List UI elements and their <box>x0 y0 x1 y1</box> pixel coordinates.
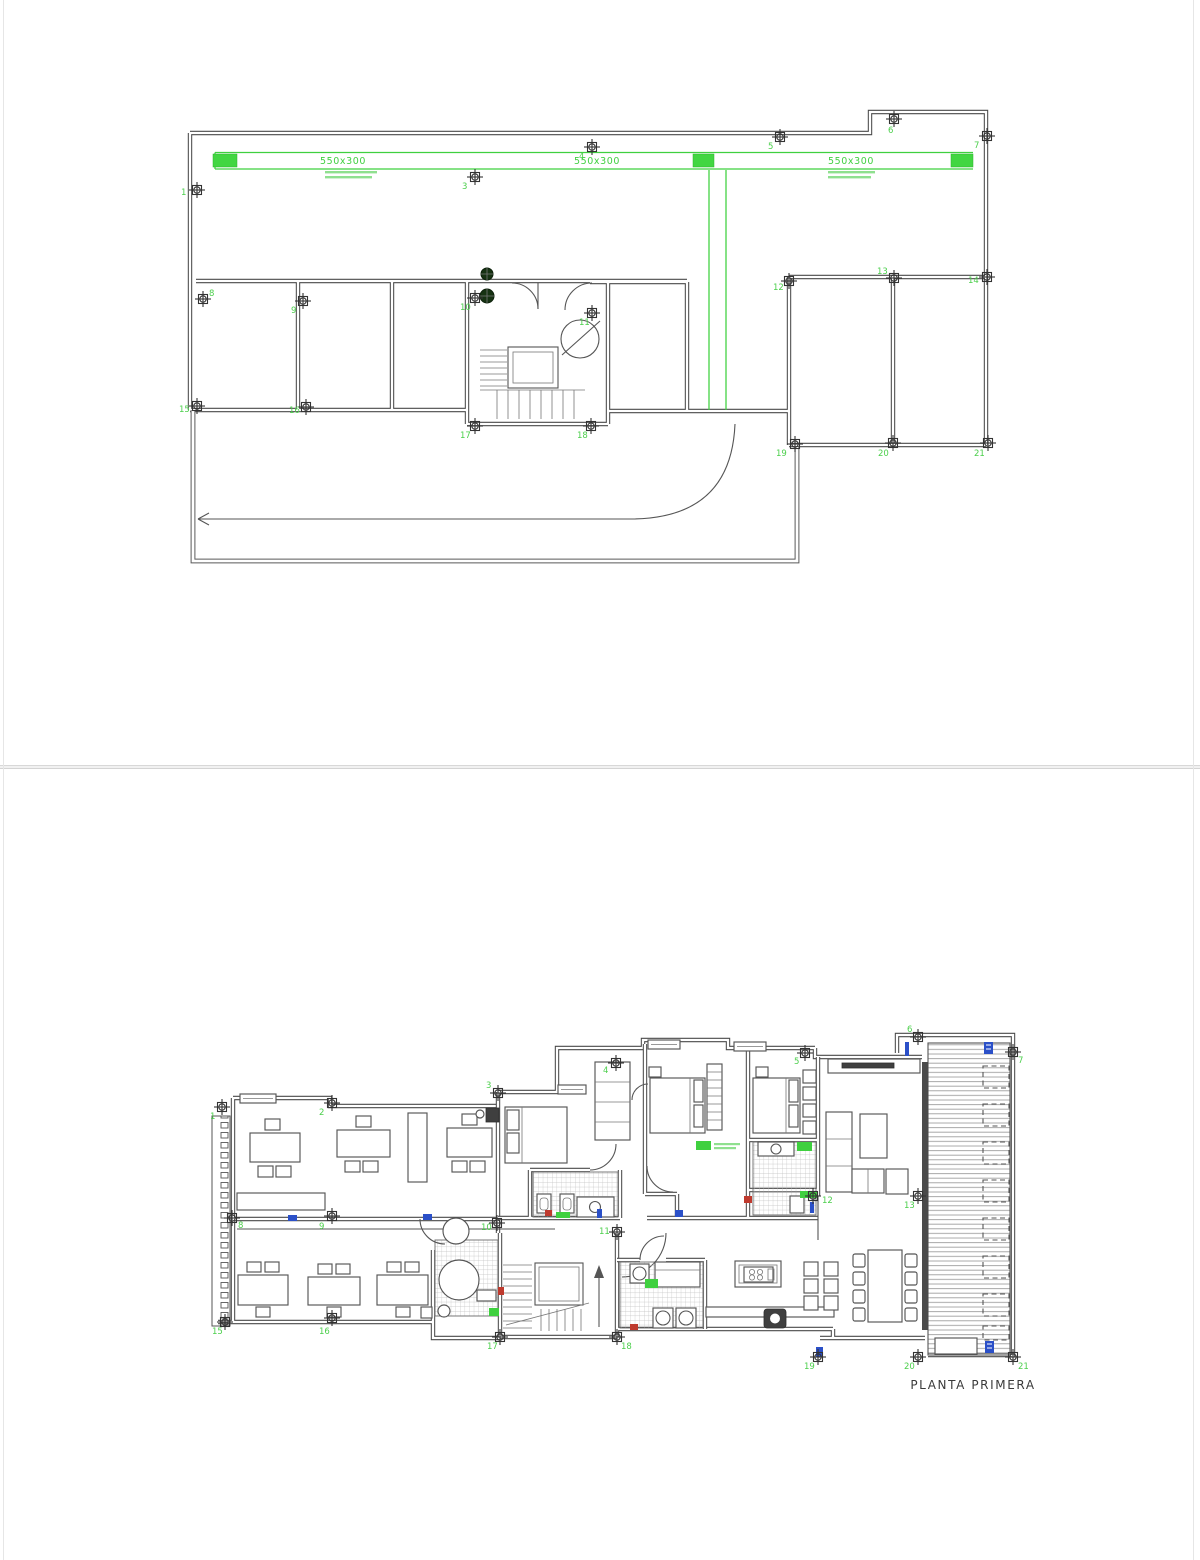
grid-marker-label: 15 <box>179 405 190 415</box>
column <box>443 1218 469 1244</box>
desk <box>238 1275 288 1305</box>
page-edge-right <box>1193 0 1194 1560</box>
stair-core <box>503 1263 604 1331</box>
grid-marker-label: 10 <box>460 303 471 313</box>
sink <box>477 1290 496 1301</box>
grid-marker-label: 15 <box>212 1327 223 1337</box>
grid-marker-label: 20 <box>904 1362 915 1372</box>
vanity <box>577 1197 614 1217</box>
duct-size-label: 550x300 <box>828 156 874 167</box>
office-desks-top <box>237 1108 499 1210</box>
duct-damper <box>951 154 973 167</box>
plan-title: PLANTA PRIMERA <box>910 1378 1035 1392</box>
sofa <box>826 1112 852 1192</box>
document-viewer: 550x300 550x300 550x300 <box>0 0 1200 1560</box>
deck-step <box>935 1338 977 1354</box>
roof-plan-drawing: 550x300 550x300 550x300 <box>0 0 1200 764</box>
duct-damper <box>213 154 237 167</box>
grid-marker-label: 3 <box>462 182 467 192</box>
bedside-table <box>756 1067 768 1077</box>
grid-marker-label: 12 <box>773 283 784 293</box>
counter <box>655 1262 700 1287</box>
grid-marker-label: 18 <box>621 1342 632 1352</box>
page-planta-primera: 1 2 3 4 5 6 7 8 9 10 11 12 13 15 16 17 1… <box>0 770 1200 1560</box>
grid-marker-label: 14 <box>968 276 979 286</box>
grid-marker-label: 16 <box>319 1327 330 1337</box>
page-roof-plan: 550x300 550x300 550x300 <box>0 0 1200 764</box>
grid-marker-label: 13 <box>904 1201 915 1211</box>
drain <box>438 1305 450 1317</box>
grid-marker-label: 21 <box>1018 1362 1029 1372</box>
grid-marker-label: 10 <box>481 1223 492 1233</box>
grid-marker-label: 19 <box>776 449 787 459</box>
grid-marker-label: 3 <box>486 1081 491 1091</box>
desk <box>308 1277 360 1305</box>
grid-marker-label: 8 <box>238 1221 243 1231</box>
terrace-deck <box>922 1043 1010 1355</box>
elevator-shaft <box>535 1263 583 1305</box>
duct-damper <box>693 154 714 167</box>
grid-marker-label: 20 <box>878 449 889 459</box>
kitchen <box>706 1261 838 1328</box>
grid-marker-label: 7 <box>1018 1056 1023 1066</box>
duct-size-label: 550x300 <box>320 156 366 167</box>
grid-marker-label: 1 <box>181 188 186 198</box>
grid-marker-label: 2 <box>319 1108 324 1118</box>
grid-marker-label: 7 <box>974 141 979 151</box>
grid-marker-label: 9 <box>319 1222 324 1232</box>
elevator-shaft <box>508 347 558 388</box>
page-edge-left <box>3 0 4 1560</box>
grid-marker-label: 18 <box>577 431 588 441</box>
laundry <box>620 1262 703 1328</box>
floor-plan-drawing: 1 2 3 4 5 6 7 8 9 10 11 12 13 15 16 17 1… <box>0 770 1200 1560</box>
grid-marker-label: 11 <box>599 1227 610 1237</box>
driveway-court <box>193 410 797 561</box>
grid-marker-label: 9 <box>291 306 296 316</box>
grid-marker-label: 1 <box>210 1112 215 1122</box>
grid-marker-label: 13 <box>877 267 888 277</box>
grid-marker-label: 17 <box>487 1342 498 1352</box>
stair-core <box>480 283 600 419</box>
grid-marker-label: 16 <box>289 406 300 416</box>
grid-marker-label: 4 <box>603 1066 608 1076</box>
wardrobe <box>595 1062 630 1140</box>
dining-area <box>853 1250 917 1322</box>
living-room <box>826 1059 920 1194</box>
grid-marker-label: 4 <box>579 152 584 162</box>
grid-marker-label: 17 <box>460 431 471 441</box>
desk <box>250 1133 300 1162</box>
decking <box>928 1043 1010 1355</box>
grid-marker-label: 5 <box>768 142 773 152</box>
door-swing-arc <box>565 283 592 310</box>
grid-marker-label: 21 <box>974 449 985 459</box>
grid-marker-label: 6 <box>907 1025 912 1035</box>
desk <box>337 1130 390 1157</box>
bedside-table <box>649 1067 661 1077</box>
grid-marker-label: 5 <box>794 1057 799 1067</box>
dining-table <box>868 1250 902 1322</box>
grid-marker-label: 11 <box>579 318 590 328</box>
coffee-table <box>860 1114 887 1158</box>
armchair <box>886 1169 908 1194</box>
grid-marker-label: 19 <box>804 1362 815 1372</box>
cabinet <box>408 1113 427 1182</box>
grid-marker-label: 8 <box>209 289 214 299</box>
duct-fine-print <box>325 171 875 178</box>
desk <box>447 1128 492 1157</box>
office-desks-bottom <box>238 1262 432 1318</box>
grid-marker-label: 12 <box>822 1196 833 1206</box>
round-tub <box>439 1260 479 1300</box>
grid-marker-label: 6 <box>888 126 893 136</box>
sideboard <box>237 1193 325 1210</box>
door-swing-arc <box>512 283 538 309</box>
desk <box>377 1275 428 1305</box>
toilet <box>790 1196 804 1213</box>
sink-unit <box>486 1108 499 1122</box>
